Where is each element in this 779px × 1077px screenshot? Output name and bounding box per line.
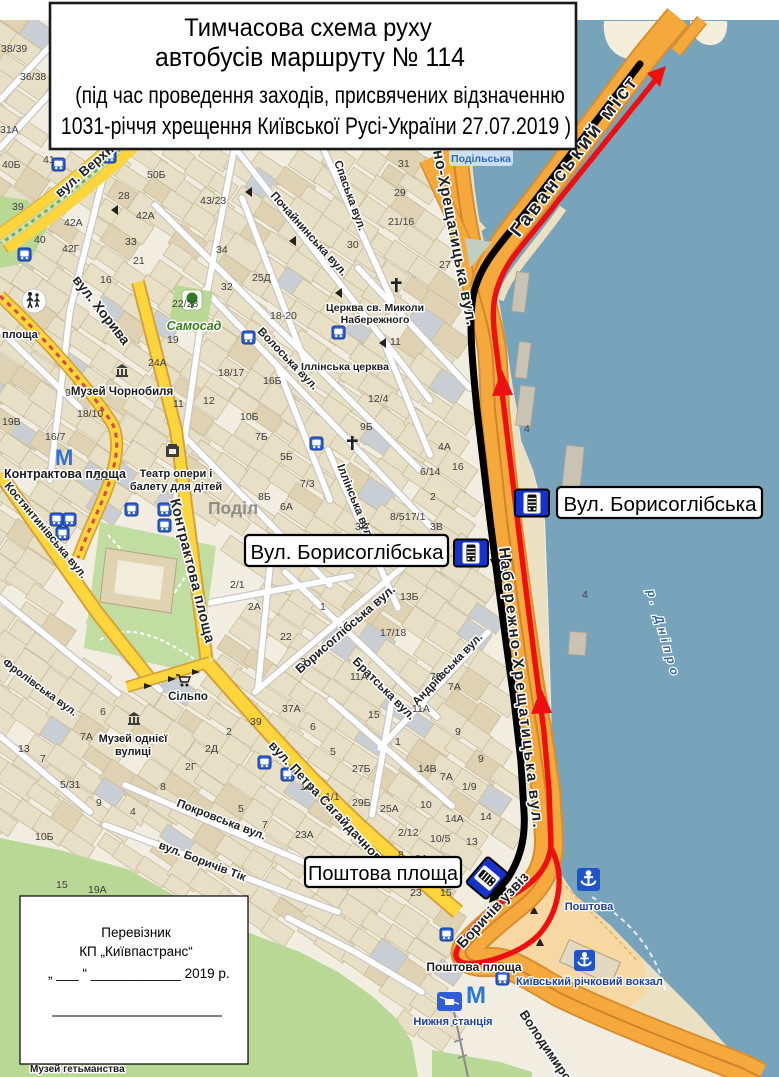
svg-text:1031-річчя хрещення Київської: 1031-річчя хрещення Київської Русі-Украї…	[61, 112, 571, 139]
svg-text:4: 4	[524, 423, 530, 435]
svg-text:1/1: 1/1	[325, 791, 340, 803]
svg-text:11А: 11А	[350, 671, 368, 683]
svg-text:28: 28	[118, 190, 130, 202]
svg-text:34: 34	[216, 244, 228, 256]
svg-text:Поштова площа: Поштова площа	[426, 960, 522, 974]
svg-text:40Б: 40Б	[2, 159, 21, 171]
svg-text:площа: площа	[2, 329, 39, 341]
svg-text:14А: 14А	[445, 813, 464, 825]
svg-text:10Б: 10Б	[240, 411, 259, 423]
svg-text:42А: 42А	[136, 210, 155, 222]
svg-text:6А: 6А	[280, 501, 293, 513]
svg-text:2: 2	[430, 491, 436, 503]
svg-text:Набережного: Набережного	[341, 314, 410, 326]
svg-text:7А: 7А	[448, 681, 461, 693]
svg-text:16/7: 16/7	[45, 431, 66, 443]
svg-text:50Б: 50Б	[147, 169, 166, 181]
svg-text:14: 14	[480, 811, 492, 823]
svg-text:1: 1	[320, 601, 326, 613]
svg-text:43/23: 43/23	[200, 195, 226, 207]
svg-text:23: 23	[410, 887, 422, 899]
svg-text:18-20: 18-20	[270, 310, 297, 322]
svg-text:7: 7	[262, 819, 268, 831]
svg-text:12: 12	[203, 395, 215, 407]
svg-text:27: 27	[439, 259, 451, 271]
svg-text:2Д: 2Д	[205, 743, 218, 755]
svg-text:Поштова площа: Поштова площа	[308, 863, 459, 885]
svg-text:Музей гетьманства: Музей гетьманства	[30, 1064, 125, 1075]
svg-text:23А: 23А	[295, 829, 314, 841]
svg-text:2/1: 2/1	[95, 471, 110, 483]
svg-text:Музей однієї: Музей однієї	[99, 733, 169, 745]
svg-text:5/31: 5/31	[60, 779, 81, 791]
svg-text:7/3: 7/3	[300, 478, 315, 490]
svg-text:31А: 31А	[0, 124, 19, 136]
svg-text:42Г: 42Г	[62, 243, 80, 255]
svg-text:6/14: 6/14	[420, 466, 441, 478]
svg-text:39: 39	[250, 716, 262, 728]
svg-text:8: 8	[160, 781, 166, 793]
svg-text:24А: 24А	[148, 357, 167, 369]
svg-text:балету для дітей: балету для дітей	[130, 481, 222, 493]
svg-text:22/28: 22/28	[172, 298, 198, 310]
svg-text:Вул. Борисоглібська: Вул. Борисоглібська	[564, 493, 758, 516]
svg-text:Поділ: Поділ	[208, 498, 258, 518]
svg-text:39: 39	[12, 201, 24, 213]
svg-text:3: 3	[300, 656, 306, 668]
svg-text:Поштова: Поштова	[565, 901, 614, 913]
svg-text:22: 22	[280, 631, 292, 643]
svg-text:30: 30	[347, 239, 359, 251]
svg-text:1: 1	[395, 736, 401, 748]
svg-text:21/16: 21/16	[388, 216, 414, 228]
svg-text:14В: 14В	[418, 763, 437, 775]
svg-text:17/18: 17/18	[380, 627, 406, 639]
svg-text:18/10: 18/10	[77, 408, 103, 420]
svg-text:40: 40	[34, 234, 46, 246]
svg-text:Нижня станція: Нижня станція	[413, 1016, 492, 1028]
svg-text:Іллінська церква: Іллінська церква	[301, 361, 389, 373]
svg-text:27Б: 27Б	[352, 763, 371, 775]
svg-text:Подільська: Подільська	[451, 153, 511, 165]
svg-text:19В: 19В	[2, 416, 21, 428]
svg-text:Тимчасова схема руху: Тимчасова схема руху	[184, 14, 432, 42]
svg-text:10Б: 10Б	[35, 831, 54, 843]
svg-text:8Б: 8Б	[258, 491, 271, 503]
svg-text:(під час проведення заходів, п: (під час проведення заходів, присвячених…	[75, 83, 565, 108]
svg-text:10: 10	[420, 799, 432, 811]
svg-text:29Б: 29Б	[352, 797, 371, 809]
svg-text:9: 9	[455, 726, 461, 738]
svg-text:5Б: 5Б	[280, 451, 293, 463]
svg-text:Сільпо: Сільпо	[168, 691, 208, 703]
svg-text:2/12: 2/12	[398, 827, 419, 839]
svg-text:11: 11	[390, 336, 401, 348]
svg-text:2А: 2А	[248, 601, 261, 613]
svg-text:25Д: 25Д	[252, 272, 271, 284]
svg-text:Музей Чорнобиля: Музей Чорнобиля	[71, 386, 173, 398]
svg-text:12/4: 12/4	[368, 393, 389, 405]
svg-text:3/7: 3/7	[355, 521, 370, 533]
svg-text:36/38: 36/38	[20, 71, 46, 83]
svg-text:31: 31	[398, 158, 410, 170]
svg-text:вулиці: вулиці	[115, 746, 151, 758]
svg-text:7Б: 7Б	[430, 671, 443, 683]
svg-text:32: 32	[221, 281, 233, 293]
svg-text:7А: 7А	[80, 731, 93, 743]
svg-text:Церква св. Миколи: Церква св. Миколи	[326, 302, 424, 314]
svg-text:38/39: 38/39	[1, 43, 27, 55]
svg-text:2Г: 2Г	[185, 761, 197, 773]
svg-text:10/5: 10/5	[430, 833, 451, 845]
svg-text:9Б: 9Б	[360, 421, 373, 433]
svg-text:Самосад: Самосад	[167, 319, 222, 333]
svg-text:13: 13	[466, 836, 478, 848]
svg-text:Театр опери і: Театр опери і	[140, 468, 213, 480]
svg-text:41: 41	[43, 154, 55, 166]
svg-text:4: 4	[582, 589, 588, 601]
svg-text:8/5: 8/5	[390, 511, 405, 523]
svg-text:5: 5	[238, 803, 244, 815]
svg-text:25А: 25А	[380, 803, 399, 815]
svg-text:37А: 37А	[282, 703, 301, 715]
svg-text:16: 16	[452, 461, 464, 473]
svg-text:4: 4	[130, 806, 136, 818]
svg-text:6: 6	[100, 706, 106, 718]
svg-text:2/1: 2/1	[230, 579, 245, 591]
svg-text:42А: 42А	[64, 217, 83, 229]
svg-text:7: 7	[40, 753, 46, 765]
svg-text:1/9: 1/9	[462, 781, 477, 793]
svg-text:1А: 1А	[300, 781, 313, 793]
svg-text:21: 21	[133, 255, 145, 267]
svg-text:Вул. Борисоглібська: Вул. Борисоглібська	[251, 541, 445, 564]
svg-text:11: 11	[173, 398, 184, 410]
svg-text:„ ___ “ ____________ 2019 р.: „ ___ “ ____________ 2019 р.	[48, 966, 230, 981]
svg-text:2: 2	[226, 726, 232, 738]
svg-text:16Б: 16Б	[263, 375, 282, 387]
svg-text:15: 15	[440, 887, 452, 899]
svg-text:15: 15	[368, 709, 380, 721]
svg-text:КП „Київпастранс“: КП „Київпастранс“	[79, 944, 193, 959]
svg-text:19А: 19А	[88, 884, 107, 896]
svg-text:4А: 4А	[438, 441, 451, 453]
svg-text:9: 9	[478, 753, 484, 765]
svg-text:9: 9	[65, 387, 71, 399]
svg-text:Перевізник: Перевізник	[101, 925, 171, 940]
svg-text:6: 6	[310, 721, 316, 733]
svg-text:33: 33	[125, 236, 137, 248]
svg-text:13: 13	[18, 743, 30, 755]
svg-text:29: 29	[394, 187, 406, 199]
svg-text:М: М	[466, 982, 486, 1009]
svg-text:16: 16	[100, 274, 112, 286]
svg-text:5: 5	[330, 746, 336, 758]
svg-text:19: 19	[167, 334, 179, 346]
svg-text:13Б: 13Б	[400, 591, 419, 603]
svg-text:15: 15	[56, 879, 68, 891]
svg-text:9: 9	[96, 797, 102, 809]
svg-text:Київський річковий вокзал: Київський річковий вокзал	[516, 976, 663, 988]
svg-text:11А: 11А	[412, 703, 430, 715]
svg-text:автобусів маршруту № 114: автобусів маршруту № 114	[155, 43, 465, 72]
svg-text:3В: 3В	[430, 521, 443, 533]
svg-text:7Б: 7Б	[255, 431, 268, 443]
svg-text:17/1: 17/1	[405, 511, 426, 523]
svg-text:18/17: 18/17	[218, 367, 244, 379]
svg-text:7А: 7А	[440, 771, 453, 783]
